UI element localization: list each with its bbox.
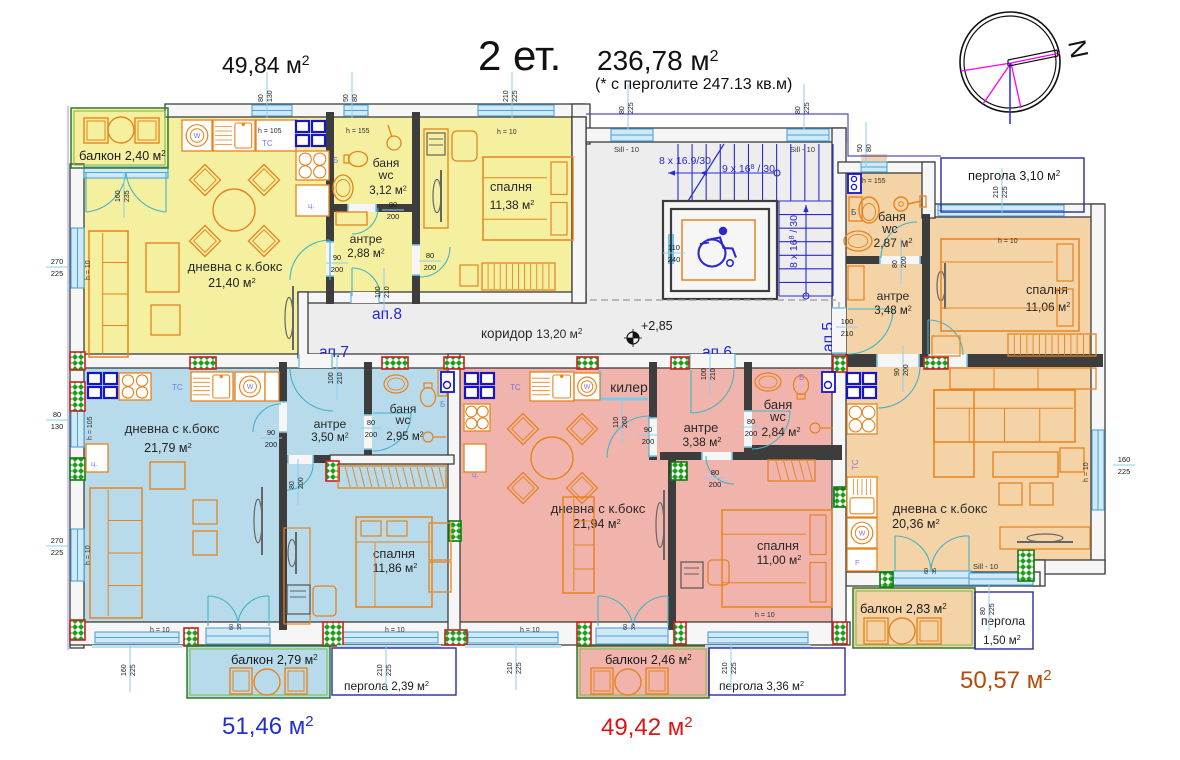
svg-text:дневна с к.бокс: дневна с к.бокс (551, 501, 646, 516)
svg-text:160: 160 (121, 664, 128, 676)
svg-text:ц.: ц. (308, 201, 314, 210)
svg-text:8 x 16.9/30: 8 x 16.9/30 (659, 155, 711, 167)
svg-text:90: 90 (267, 428, 275, 437)
svg-text:80: 80 (711, 468, 719, 477)
svg-text:ТС: ТС (262, 139, 273, 148)
svg-text:пергола 3,10 м2: пергола 3,10 м2 (968, 168, 1061, 183)
svg-text:W: W (194, 133, 201, 140)
svg-text:h = 10: h = 10 (85, 545, 92, 565)
svg-text:200: 200 (709, 480, 722, 489)
svg-text:N: N (1062, 37, 1093, 60)
svg-text:210: 210 (507, 662, 514, 674)
svg-text:ц.: ц. (91, 459, 97, 468)
svg-text:+2,85: +2,85 (641, 319, 673, 333)
svg-text:h = 155: h = 155 (862, 178, 886, 185)
svg-text:225: 225 (989, 603, 996, 615)
svg-text:100: 100 (328, 372, 335, 384)
svg-text:ТС: ТС (851, 459, 860, 470)
svg-text:200: 200 (298, 477, 305, 489)
svg-text:225: 225 (731, 662, 738, 674)
svg-text:49,42 м2: 49,42 м2 (601, 714, 693, 741)
svg-text:200: 200 (745, 429, 758, 438)
svg-text:wc: wc (395, 413, 411, 427)
svg-text:80: 80 (980, 607, 987, 615)
svg-text:Б: Б (851, 208, 856, 217)
svg-text:Sill - 10: Sill - 10 (790, 145, 815, 154)
svg-text:225: 225 (51, 269, 64, 278)
svg-text:90: 90 (644, 425, 652, 434)
svg-text:21,79 м2: 21,79 м2 (144, 441, 192, 455)
svg-text:Б: Б (799, 373, 804, 382)
svg-text:h = 10: h = 10 (385, 627, 405, 634)
svg-text:80: 80 (619, 106, 626, 114)
svg-text:51,46 м2: 51,46 м2 (222, 713, 314, 740)
svg-text:11,00 м2: 11,00 м2 (757, 553, 802, 567)
svg-text:210: 210 (384, 286, 391, 298)
svg-text:балкон 2,40 м2: балкон 2,40 м2 (79, 148, 166, 163)
svg-text:200: 200 (424, 263, 437, 272)
svg-text:21,94 м2: 21,94 м2 (573, 517, 621, 531)
svg-text:80: 80 (795, 106, 802, 114)
svg-text:h = 10: h = 10 (85, 260, 92, 280)
svg-text:80: 80 (258, 94, 265, 102)
svg-text:h = 10: h = 10 (998, 238, 1018, 245)
svg-text:210: 210 (377, 664, 384, 676)
svg-text:3,48 м2: 3,48 м2 (874, 304, 911, 317)
svg-text:балкон 2,79 м2: балкон 2,79 м2 (231, 652, 318, 667)
svg-text:балкон 2,46 м2: балкон 2,46 м2 (605, 652, 692, 667)
svg-text:11,06 м2: 11,06 м2 (1026, 300, 1071, 314)
svg-text:коридор 13,20 м2: коридор 13,20 м2 (481, 326, 583, 341)
svg-text:225: 225 (1002, 186, 1009, 198)
svg-text:270: 270 (51, 536, 64, 545)
svg-text:пергола 2,39 м2: пергола 2,39 м2 (344, 679, 429, 693)
svg-text:225: 225 (516, 662, 523, 674)
svg-text:антре: антре (684, 420, 719, 435)
svg-text:20,36 м2: 20,36 м2 (892, 517, 940, 531)
svg-text:80: 80 (389, 200, 397, 209)
svg-text:h = 10: h = 10 (755, 612, 775, 619)
svg-text:3,12 м2: 3,12 м2 (369, 184, 406, 197)
svg-text:антре: антре (350, 232, 383, 246)
svg-text:h = 105: h = 105 (258, 128, 282, 135)
svg-text:21,40 м2: 21,40 м2 (208, 276, 256, 290)
svg-text:2,87 м2: 2,87 м2 (873, 236, 912, 250)
svg-text:wc: wc (881, 222, 897, 236)
svg-text:h = 10: h = 10 (1083, 462, 1090, 482)
svg-text:дневна с к.бокс: дневна с к.бокс (125, 421, 220, 436)
svg-text:дневна с к.бокс: дневна с к.бокс (188, 259, 283, 274)
svg-text:50: 50 (343, 94, 350, 102)
svg-text:200: 200 (903, 364, 910, 376)
svg-text:50: 50 (857, 144, 864, 152)
svg-text:100: 100 (375, 286, 382, 298)
svg-text:ап.8: ап.8 (372, 306, 402, 323)
svg-text:225: 225 (804, 102, 811, 114)
svg-text:Sill - 10: Sill - 10 (973, 562, 998, 571)
svg-text:80: 80 (747, 417, 755, 426)
svg-text:110: 110 (613, 417, 620, 428)
svg-text:200: 200 (365, 430, 378, 439)
svg-text:50,57 м2: 50,57 м2 (960, 667, 1052, 694)
svg-text:225: 225 (512, 90, 519, 102)
svg-text:35: 35 (631, 624, 637, 630)
svg-text:80: 80 (53, 410, 61, 419)
svg-text:W: W (247, 384, 254, 391)
svg-text:210: 210 (841, 329, 854, 338)
svg-text:2,84 м2: 2,84 м2 (761, 425, 800, 439)
svg-text:225: 225 (51, 548, 64, 557)
svg-text:Sill - 10: Sill - 10 (614, 145, 639, 154)
svg-text:Б: Б (333, 156, 338, 165)
svg-text:килер: килер (610, 379, 648, 395)
svg-text:3,50 м2: 3,50 м2 (311, 431, 348, 444)
svg-text:8 x 168 / 30: 8 x 168 / 30 (788, 215, 800, 268)
svg-text:h = 10: h = 10 (497, 129, 517, 136)
svg-text:W: W (584, 384, 591, 391)
svg-text:ТС: ТС (172, 383, 183, 392)
svg-text:спалня: спалня (373, 546, 415, 561)
svg-text:60: 60 (229, 624, 235, 630)
svg-text:240: 240 (668, 255, 681, 264)
svg-text:100: 100 (701, 368, 708, 380)
svg-text:антре: антре (877, 289, 910, 303)
svg-text:210: 210 (993, 186, 1000, 198)
svg-text:210: 210 (722, 662, 729, 674)
svg-text:90: 90 (894, 368, 901, 376)
svg-text:80: 80 (367, 418, 375, 427)
svg-text:wc: wc (769, 409, 786, 424)
svg-text:200: 200 (331, 265, 344, 274)
svg-text:49,84 м2: 49,84 м2 (222, 52, 310, 78)
svg-text:h = 10: h = 10 (520, 627, 540, 634)
svg-text:200: 200 (387, 212, 400, 221)
svg-text:9 x 168 / 30: 9 x 168 / 30 (722, 163, 775, 175)
svg-text:130: 130 (267, 90, 274, 102)
svg-text:антре: антре (314, 417, 347, 431)
svg-text:1,50 м2: 1,50 м2 (983, 633, 1021, 647)
svg-text:3,38 м2: 3,38 м2 (682, 435, 721, 449)
svg-text:225: 225 (386, 664, 393, 676)
svg-text:210: 210 (337, 372, 344, 384)
svg-text:160: 160 (1118, 455, 1131, 464)
svg-text:2,95 м2: 2,95 м2 (386, 430, 423, 443)
svg-text:160: 160 (115, 190, 122, 202)
svg-text:80: 80 (289, 481, 296, 489)
svg-text:270: 270 (51, 257, 64, 266)
svg-text:11,86 м2: 11,86 м2 (373, 561, 418, 575)
svg-text:35: 35 (932, 568, 938, 574)
svg-text:210: 210 (503, 90, 510, 102)
svg-text:(* с перголите 247.13 кв.м): (* с перголите 247.13 кв.м) (595, 76, 792, 93)
svg-text:200: 200 (642, 437, 655, 446)
svg-text:F: F (855, 558, 860, 567)
svg-text:пергола 3,36 м2: пергола 3,36 м2 (719, 679, 804, 693)
svg-text:236,78 м2: 236,78 м2 (597, 45, 719, 76)
svg-text:Б: Б (440, 400, 445, 409)
svg-text:wc: wc (378, 168, 394, 182)
svg-text:200: 200 (265, 440, 278, 449)
svg-text:80: 80 (426, 251, 434, 260)
svg-text:W: W (859, 531, 866, 538)
svg-text:200: 200 (901, 256, 908, 268)
svg-text:80: 80 (352, 94, 359, 102)
svg-text:60: 60 (924, 568, 930, 574)
svg-text:225: 225 (130, 664, 137, 676)
svg-text:80: 80 (892, 260, 899, 268)
svg-text:2,88 м2: 2,88 м2 (347, 247, 384, 260)
svg-text:225: 225 (1118, 467, 1131, 476)
svg-text:80: 80 (866, 144, 873, 152)
svg-text:100: 100 (841, 317, 854, 326)
svg-text:60: 60 (623, 624, 629, 630)
svg-text:260: 260 (622, 416, 629, 428)
svg-text:ТС: ТС (510, 383, 521, 392)
svg-text:130: 130 (51, 422, 64, 431)
svg-text:спалня: спалня (490, 179, 532, 194)
svg-text:h = 105: h = 105 (87, 416, 94, 440)
svg-text:210: 210 (710, 368, 717, 380)
svg-text:225: 225 (628, 102, 635, 114)
svg-text:дневна с к.бокс: дневна с к.бокс (893, 501, 988, 516)
svg-text:h = 10: h = 10 (150, 627, 170, 634)
svg-text:35: 35 (237, 624, 243, 630)
svg-text:235: 235 (124, 190, 131, 202)
svg-text:пергола: пергола (981, 614, 1025, 628)
svg-text:h = 155: h = 155 (346, 128, 370, 135)
svg-text:11,38 м2: 11,38 м2 (490, 198, 535, 212)
svg-text:2 ет.: 2 ет. (478, 32, 561, 79)
svg-text:ц.: ц. (472, 470, 478, 479)
svg-text:балкон 2,83 м2: балкон 2,83 м2 (860, 601, 947, 616)
svg-text:спалня: спалня (757, 538, 799, 553)
svg-text:110: 110 (668, 243, 680, 252)
svg-text:90: 90 (333, 253, 341, 262)
